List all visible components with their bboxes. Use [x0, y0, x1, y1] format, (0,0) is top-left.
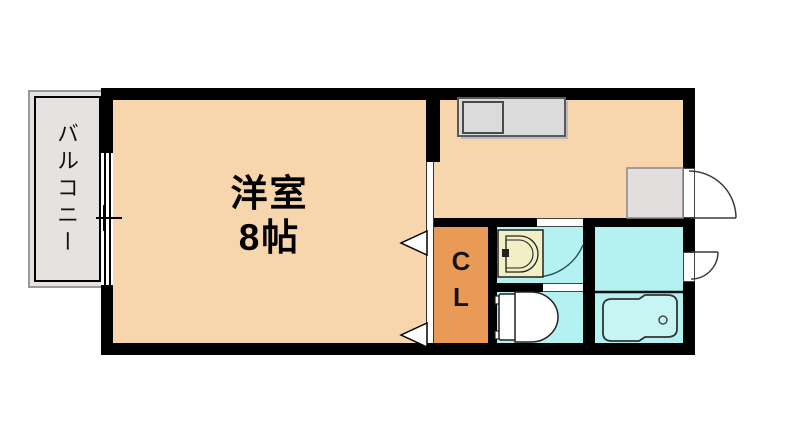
western-room-label: 洋室 8帖: [113, 172, 426, 259]
entrance-door-arc: [689, 171, 736, 218]
washbasin-faucet: [502, 249, 509, 257]
floor-plan: バルコニー: [0, 0, 800, 423]
bathroom-door-arc: [691, 252, 718, 279]
bathroom-exterior-door: [691, 252, 718, 279]
western-room-name: 洋室: [113, 172, 426, 216]
kitchen-sink: [463, 102, 503, 133]
closet-letter-top: C: [434, 243, 488, 279]
entrance-door: [689, 171, 736, 218]
closet-door-mark-bottom: [401, 323, 427, 347]
toilet-bowl: [515, 292, 558, 342]
closet-label: C L: [434, 243, 488, 316]
closet-letter-bottom: L: [434, 279, 488, 315]
washbasin: [498, 230, 543, 277]
toilet: [495, 292, 558, 342]
kitchen-counter: [458, 98, 568, 139]
bathtub: [603, 295, 677, 341]
western-room-size: 8帖: [113, 216, 426, 260]
entrance-mat: [627, 168, 683, 218]
